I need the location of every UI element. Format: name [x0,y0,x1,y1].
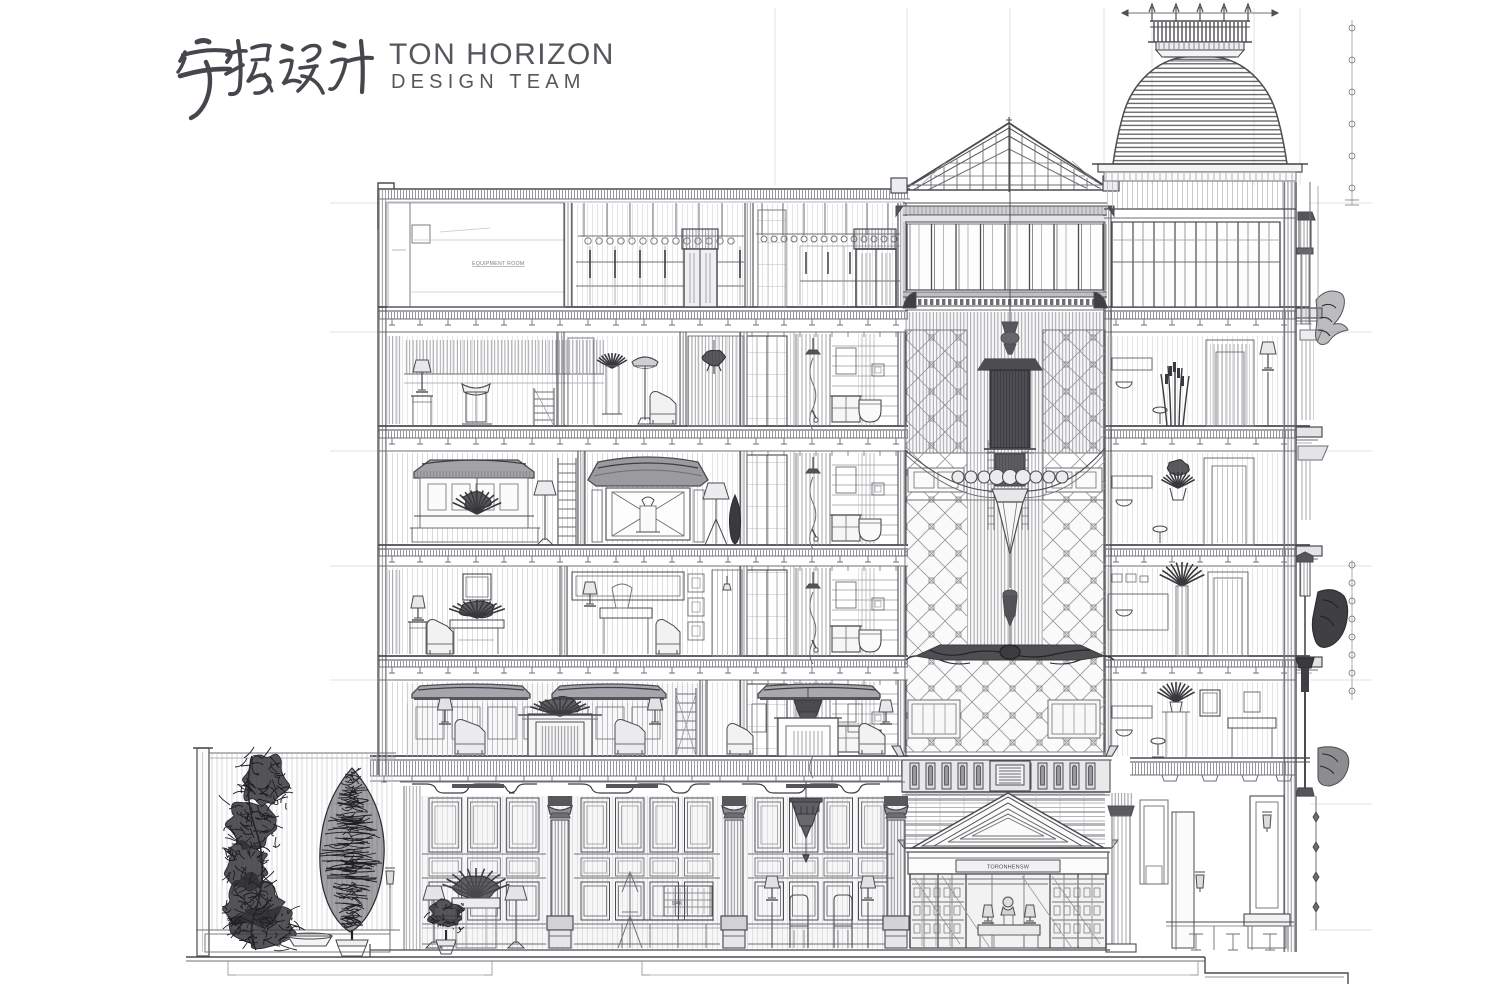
svg-text:EQUIPMENT ROOM: EQUIPMENT ROOM [472,261,525,267]
svg-text:TON HORIZON: TON HORIZON [389,38,615,71]
svg-text:TORONHENSW: TORONHENSW [987,865,1030,871]
svg-text:DESIGN TEAM: DESIGN TEAM [391,71,586,93]
